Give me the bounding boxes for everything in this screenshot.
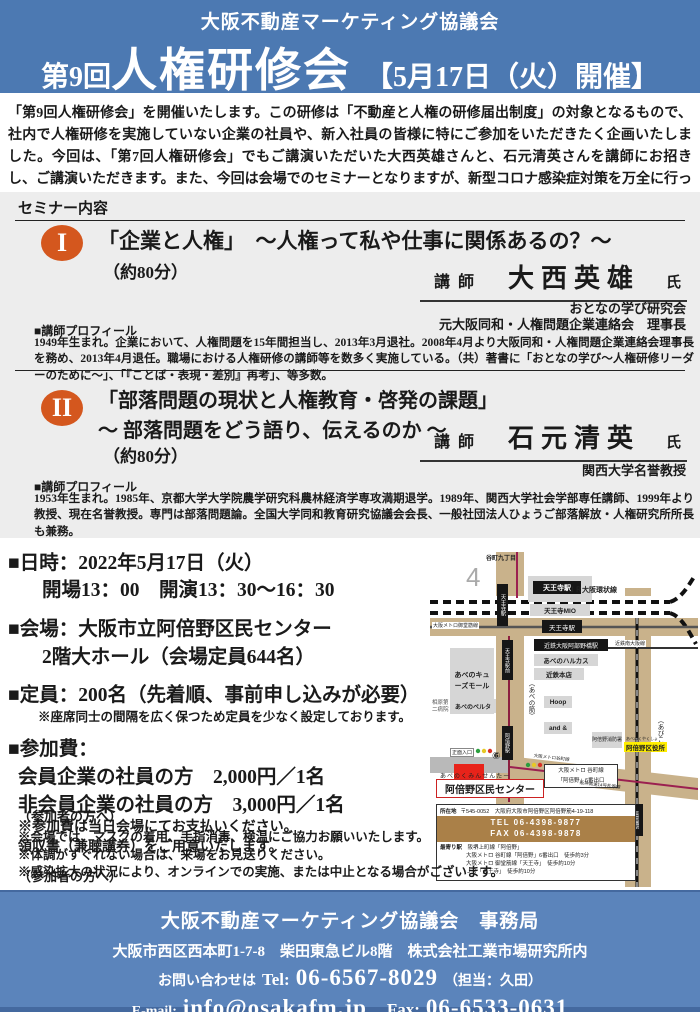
seminar1-lecturer-name: 大西英雄 xyxy=(508,258,640,295)
entrance-label: 正面入口 xyxy=(450,748,474,757)
seminar1-number-badge: I xyxy=(41,225,83,261)
footer-banner: 大阪不動産マーケティング協議会 事務局 大阪市西区西本町1-7-8 柴田東急ビル… xyxy=(0,890,700,1012)
detail-venue-sub: 2階大ホール（会場定員644名） xyxy=(42,640,315,669)
nearest-1: 阪堺上町線「阿倍野」 xyxy=(468,845,523,851)
attendee-note-heading: （参加者の方へ） xyxy=(18,806,122,825)
map-label-tanimachi9: 谷町九丁目 xyxy=(486,553,516,562)
tel-label: Tel: xyxy=(262,970,290,990)
seminar-divider xyxy=(15,370,685,371)
seminar1-lecturer-row: 講師 大西英雄 氏 xyxy=(420,258,687,302)
flyer-page: 大阪不動産マーケティング協議会 第9回人権研修会【5月17日（火）開催】 「第9… xyxy=(0,0,700,1012)
detail-datetime: ■日時：2022年5月17日（火） xyxy=(8,546,264,575)
seminar2-profile-text: 1953年生まれ。1985年、京都大学大学院農学研究科農林経済学専攻満期退学。1… xyxy=(34,491,694,540)
harukas-label: あべのハルカス xyxy=(534,654,598,666)
midosuji-line-label: 大阪メトロ御堂筋線 xyxy=(432,622,479,629)
detail-fee-member: 会員企業の社員の方 2,000円／1名 xyxy=(18,760,325,789)
seminar-section: セミナー内容 I 「企業と人権」 ～人権って私や仕事に関係あるの？～ （約80分… xyxy=(0,192,700,538)
honorific: 氏 xyxy=(666,431,681,452)
access-map: 4 谷町九丁目 天王寺駅 ＪＲ大阪環状線 天王寺MIO 天王寺駅 大阪メトロ御堂… xyxy=(430,552,698,887)
address-label: 所在地 xyxy=(440,807,457,815)
venue-fax: FAX 06-4398-9878 xyxy=(437,829,635,840)
attendee-note-3: ※感染拡大の状況により、オンラインでの実施、または中止となる場合がございます。 xyxy=(18,861,503,880)
kintetsu-line-label: 近鉄南大阪線 xyxy=(614,640,646,647)
seminar2-lecturer-row: 講師 石元清英 氏 xyxy=(420,418,687,462)
map-area-number: 4 xyxy=(466,562,480,593)
page-title: 第9回人権研修会【5月17日（火）開催】 xyxy=(0,34,700,100)
hoop-label: Hoop xyxy=(544,696,572,708)
seminar2-duration: （約80分） xyxy=(103,442,188,467)
attendee-note-1: ※会場では、マスクの着用、手指消毒、検温にご協力お願いいたします。 xyxy=(18,826,429,845)
seminar2-number-badge: II xyxy=(41,390,83,426)
detail-capacity: ■定員：200名（先着順、事前申し込みが必要） xyxy=(8,678,420,707)
jr-loop-line-label: ＪＲ大阪環状線 xyxy=(568,585,617,595)
address-value: 〒545-0052 大阪府大阪市阿倍野区阿倍野筋4-19-118 xyxy=(461,807,594,815)
lecturer-label: 講師 xyxy=(434,428,482,452)
footer-email-line: E-mail: info@osakafm.jp Fax: 06-6533-063… xyxy=(0,995,700,1012)
ward-office-label: 阿倍野区役所 xyxy=(624,742,667,752)
seminar2-title-line1: 「部落問題の現状と人権教育・啓発の課題」 xyxy=(98,384,498,413)
tel-number: 06-6567-8029 xyxy=(296,965,438,991)
title-date: 【5月17日（火）開催】 xyxy=(365,62,659,93)
and-building-label: and & xyxy=(544,722,572,734)
seminar1-profile-text: 1949年生まれ。企業において、人権問題を15年間担当し、2013年3月退社。2… xyxy=(34,335,694,384)
seminar1-title: 「企業と人権」 ～人権って私や仕事に関係あるの？～ xyxy=(98,225,611,255)
title-main: 人権研修会 xyxy=(111,45,351,96)
lecturer-label: 講師 xyxy=(434,268,482,292)
exit6-marker: ⑥ xyxy=(492,751,500,762)
email-label: E-mail: xyxy=(132,1004,177,1012)
detail-fee-heading: ■参加費： xyxy=(8,732,98,761)
nearest-label: 最寄り駅 xyxy=(440,845,462,851)
metro-exit-callout-line1: 大阪メトロ 谷町線 xyxy=(545,766,617,776)
metro-tennoji-station-label: 天王寺駅 xyxy=(542,620,582,633)
kintetsu-store-label: 近鉄本店 xyxy=(534,668,584,680)
tennoji-mio-label: 天王寺MIO xyxy=(530,604,590,616)
footer-contact-line: お問い合わせは Tel: 06-6567-8029 （担当：久田） xyxy=(0,965,700,991)
tel-note: （担当：久田） xyxy=(444,970,542,990)
seminar2-lecturer-name: 石元清英 xyxy=(508,418,640,455)
contact-prefix: お問い合わせは xyxy=(158,970,256,990)
venue-address-row: 所在地 〒545-0052 大阪府大阪市阿倍野区阿倍野筋4-19-118 xyxy=(437,805,635,816)
seminar-section-label: セミナー内容 xyxy=(18,197,108,218)
abeno-suji-road-label: （あべの筋） xyxy=(525,680,535,719)
section-underline xyxy=(15,220,685,221)
detail-capacity-note: ※座席同士の間隔を広く保つため定員を少なく設定しております。 xyxy=(38,706,411,725)
honorific: 氏 xyxy=(666,271,681,292)
kintetsu-station-label: 近鉄大阪阿部野橋駅 xyxy=(534,639,608,651)
detail-datetime-sub: 開場13：00 開演13：30～16：30 xyxy=(42,573,335,602)
tram-abeno-stop-label: 阿倍野駅 xyxy=(502,726,513,760)
center-name-label: 阿倍野区民センター xyxy=(436,779,544,798)
header-banner: 大阪不動産マーケティング協議会 第9回人権研修会【5月17日（火）開催】 xyxy=(0,0,700,93)
org-name: 大阪不動産マーケティング協議会 xyxy=(0,7,700,34)
footer-address: 大阪市西区西本町1-7-8 柴田東急ビル8階 株式会社工業市場研究所内 xyxy=(0,940,700,961)
tanimachi-tennoji-station-label: 天王寺駅 xyxy=(497,584,508,626)
nearest-station-line: 大阪メトロ 谷町線「阿倍野」6番出口 徒歩約3分 xyxy=(440,852,632,860)
footer-org: 大阪不動産マーケティング協議会 事務局 xyxy=(0,906,700,933)
title-prefix: 第9回 xyxy=(41,62,111,93)
seminar2-affiliation-1: 関西大学名誉教授 xyxy=(582,460,686,479)
email-address: info@osakafm.jp xyxy=(183,995,367,1012)
venue-telfax-row: TEL 06-4398-9877 FAX 06-4398-9878 xyxy=(437,816,635,842)
venue-tel: TEL 06-4398-9877 xyxy=(437,818,635,829)
belta-label: あべのベルタ xyxy=(450,699,496,713)
seminar1-duration: （約80分） xyxy=(103,258,188,283)
fax-label: Fax: xyxy=(387,1000,420,1012)
hospital-label: 相原第二病院 xyxy=(432,700,450,714)
fax-number: 06-6533-0631 xyxy=(426,995,568,1012)
tram-tennoji-ekimae-label: 天王寺駅前 xyxy=(502,640,513,680)
seminar1-affiliation-2: 元大阪同和・人権問題企業連絡会 理事長 xyxy=(439,314,686,333)
seminar2-title-line2: ～ 部落問題をどう語り、伝えるのか ～ xyxy=(98,414,447,443)
nearest-station-line: 最寄り駅 阪堺上町線「阿倍野」 xyxy=(440,844,632,852)
fire-station-label: 阿倍野消防署 xyxy=(592,732,622,748)
detail-venue: ■会場：大阪市立阿倍野区民センター xyxy=(8,612,332,641)
